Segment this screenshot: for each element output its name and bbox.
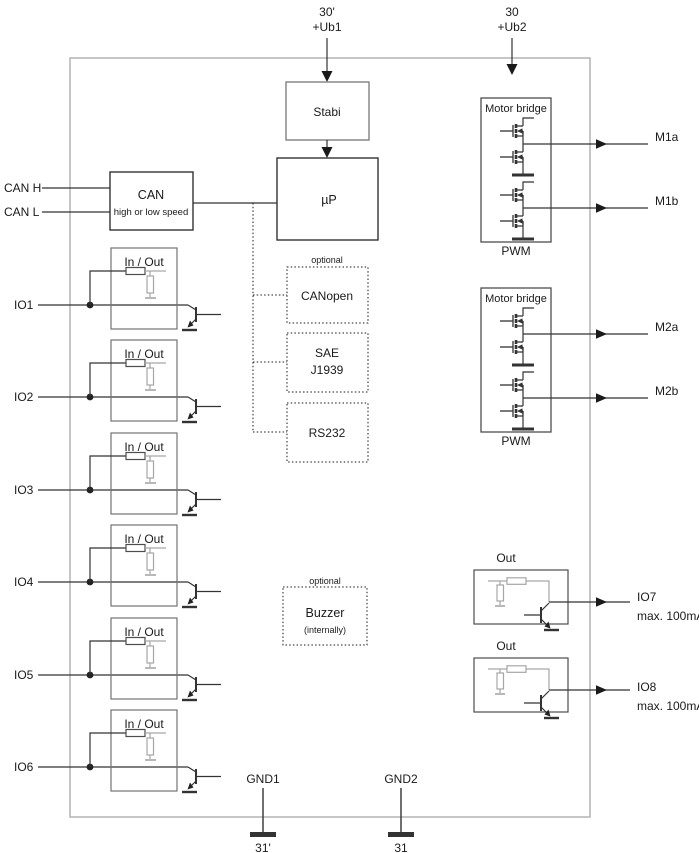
out-block-1-title: Out [496, 551, 516, 565]
half-bridge-m1b [500, 182, 648, 239]
net-ub2-label: +Ub2 [497, 20, 526, 34]
output-rating-io8: max. 100mA [637, 699, 699, 713]
io-block-6-title: In / Out [124, 717, 164, 731]
gnd2-label: GND2 [384, 772, 418, 786]
pwm-label-2: PWM [501, 434, 530, 448]
can-l-label: CAN L [4, 205, 40, 219]
io-block-3-title: In / Out [124, 440, 164, 454]
pin-30-prime-label: 30' [319, 5, 335, 19]
out-block-1 [474, 570, 630, 630]
motor-bridge-1-title: Motor bridge [485, 103, 547, 115]
sae-label-line1: SAE [315, 346, 339, 360]
diagram-canvas: 30' +Ub1 30 +Ub2 Stabi µP CAN high or lo… [0, 0, 699, 853]
gnd1-label: GND1 [246, 772, 280, 786]
pwm-label-1: PWM [501, 244, 530, 258]
buzzer-subtitle: (internally) [304, 625, 346, 635]
io-block-2-title: In / Out [124, 347, 164, 361]
output-label-io7: IO7 [637, 590, 657, 604]
canopen-label: CANopen [301, 289, 353, 303]
can-h-label: CAN H [4, 181, 41, 195]
ub2-arrowhead [507, 64, 518, 75]
gnd1-symbol [250, 788, 276, 835]
mcu-label: µP [321, 193, 337, 207]
io-block-5-title: In / Out [124, 625, 164, 639]
protocol-stub-lines [253, 295, 287, 432]
net-ub1-label: +Ub1 [312, 20, 341, 34]
io-channel-label-io6: IO6 [14, 760, 34, 774]
output-rating-io7: max. 100mA [637, 609, 699, 623]
io-block-1-title: In / Out [124, 255, 164, 269]
ub1-arrowhead [322, 71, 333, 82]
motor-output-label-m2a: M2a [655, 320, 679, 334]
stabi-to-mcu-arrowhead [322, 147, 333, 158]
buzzer-label: Buzzer [306, 606, 345, 620]
gnd1-pin-label: 31' [255, 841, 271, 853]
sae-label-line2: J1939 [311, 363, 344, 377]
out-block-2 [474, 658, 630, 718]
motor-bridge-2-title: Motor bridge [485, 293, 547, 305]
io-channel-label-io4: IO4 [14, 575, 34, 589]
io-channel-label-io1: IO1 [14, 298, 34, 312]
io-channel-label-io5: IO5 [14, 668, 34, 682]
optional-label-buzzer: optional [309, 576, 341, 586]
block-diagram: 30' +Ub1 30 +Ub2 Stabi µP CAN high or lo… [0, 0, 699, 853]
half-bridge-m2a [500, 308, 648, 365]
gnd2-symbol [388, 788, 414, 835]
io-block-4-title: In / Out [124, 532, 164, 546]
can-subtitle: high or low speed [114, 207, 188, 218]
pin-30-label: 30 [505, 5, 519, 19]
motor-output-label-m1b: M1b [655, 194, 679, 208]
gnd2-pin-label: 31 [394, 841, 408, 853]
can-title: CAN [138, 188, 164, 202]
motor-output-label-m1a: M1a [655, 130, 679, 144]
stabi-label: Stabi [313, 105, 340, 119]
motor-output-label-m2b: M2b [655, 384, 679, 398]
half-bridge-m2b [500, 372, 648, 429]
out-block-2-title: Out [496, 639, 516, 653]
io-channel-label-io2: IO2 [14, 390, 34, 404]
optional-label-protocols: optional [311, 255, 343, 265]
half-bridge-m1a [500, 118, 648, 175]
io-channel-label-io3: IO3 [14, 483, 34, 497]
rs232-label: RS232 [309, 426, 346, 440]
output-label-io8: IO8 [637, 680, 657, 694]
